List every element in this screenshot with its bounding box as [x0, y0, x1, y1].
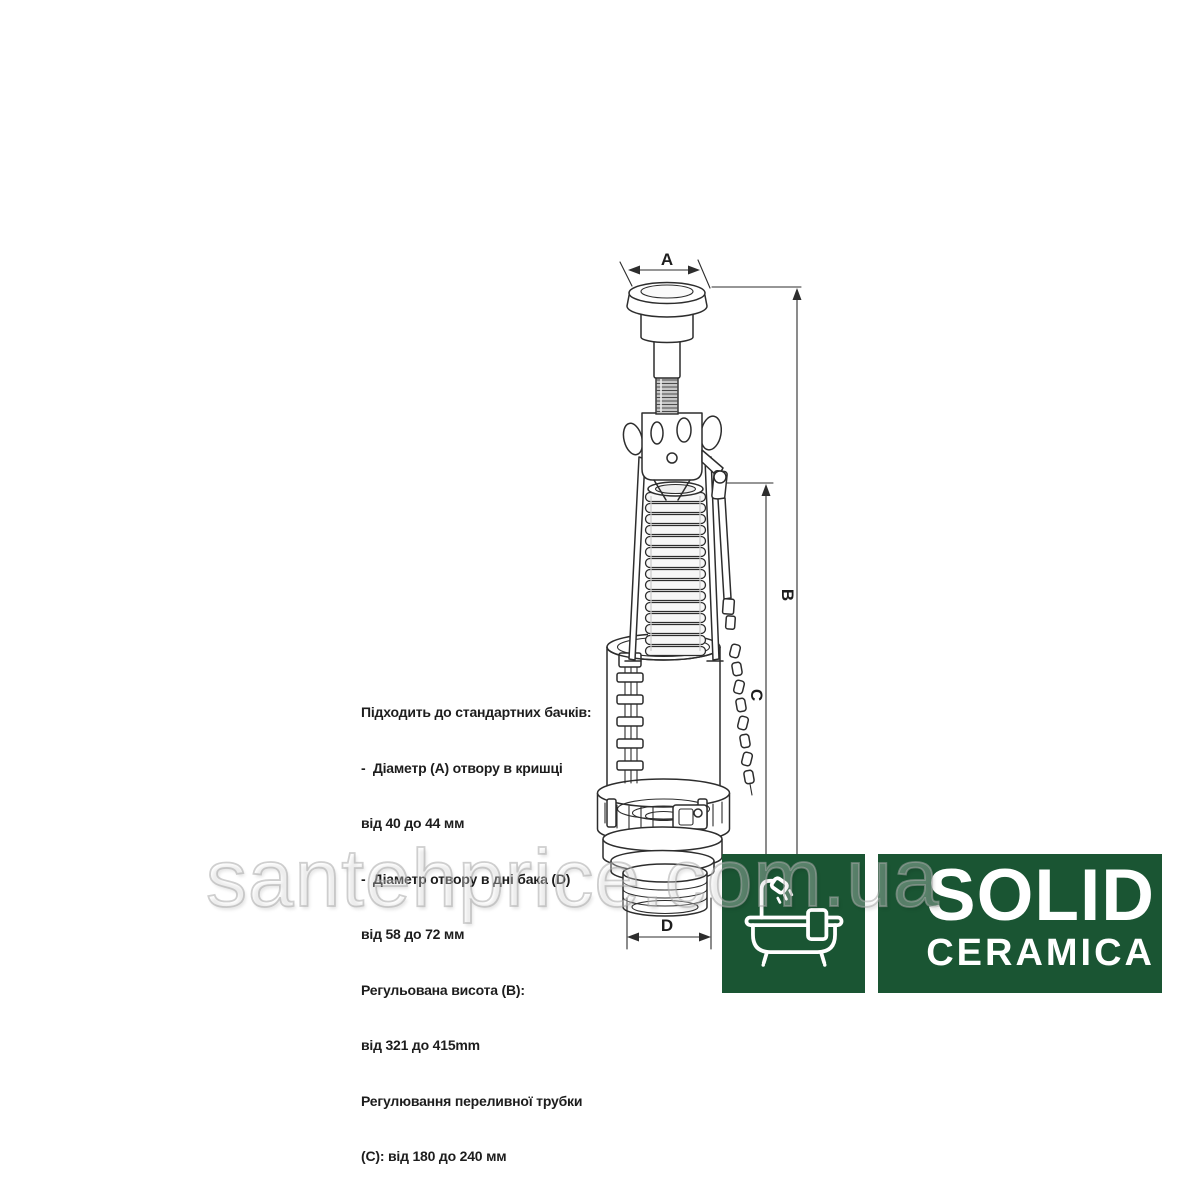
- spec-line: від 58 до 72 мм: [361, 925, 591, 944]
- adjustment-rack: [617, 653, 643, 783]
- watermark: santehprice.com.ua: [206, 838, 940, 920]
- spec-line: від 321 до 415mm: [361, 1036, 591, 1055]
- dim-label-c: C: [747, 689, 766, 701]
- spec-text-block: Підходить до стандартних бачків: - Діаме…: [361, 666, 591, 1200]
- logo-subtitle: CERAMICA: [878, 934, 1155, 972]
- overflow-tube: [607, 482, 720, 660]
- spec-line: від 40 до 44 мм: [361, 814, 591, 833]
- spec-line: (C): від 180 до 240 мм: [361, 1147, 591, 1166]
- product-image: B C: [0, 0, 1200, 1200]
- spec-line: - Діаметр (A) отвору в кришці: [361, 759, 591, 778]
- spec-line: Підходить до стандартних бачків:: [361, 703, 591, 722]
- spec-line: Регульована висота (B):: [361, 981, 591, 1000]
- dim-label-a: A: [661, 250, 673, 269]
- push-button: [627, 283, 707, 415]
- spec-line: Регулювання переливної трубки: [361, 1092, 591, 1111]
- dim-label-b: B: [778, 589, 797, 601]
